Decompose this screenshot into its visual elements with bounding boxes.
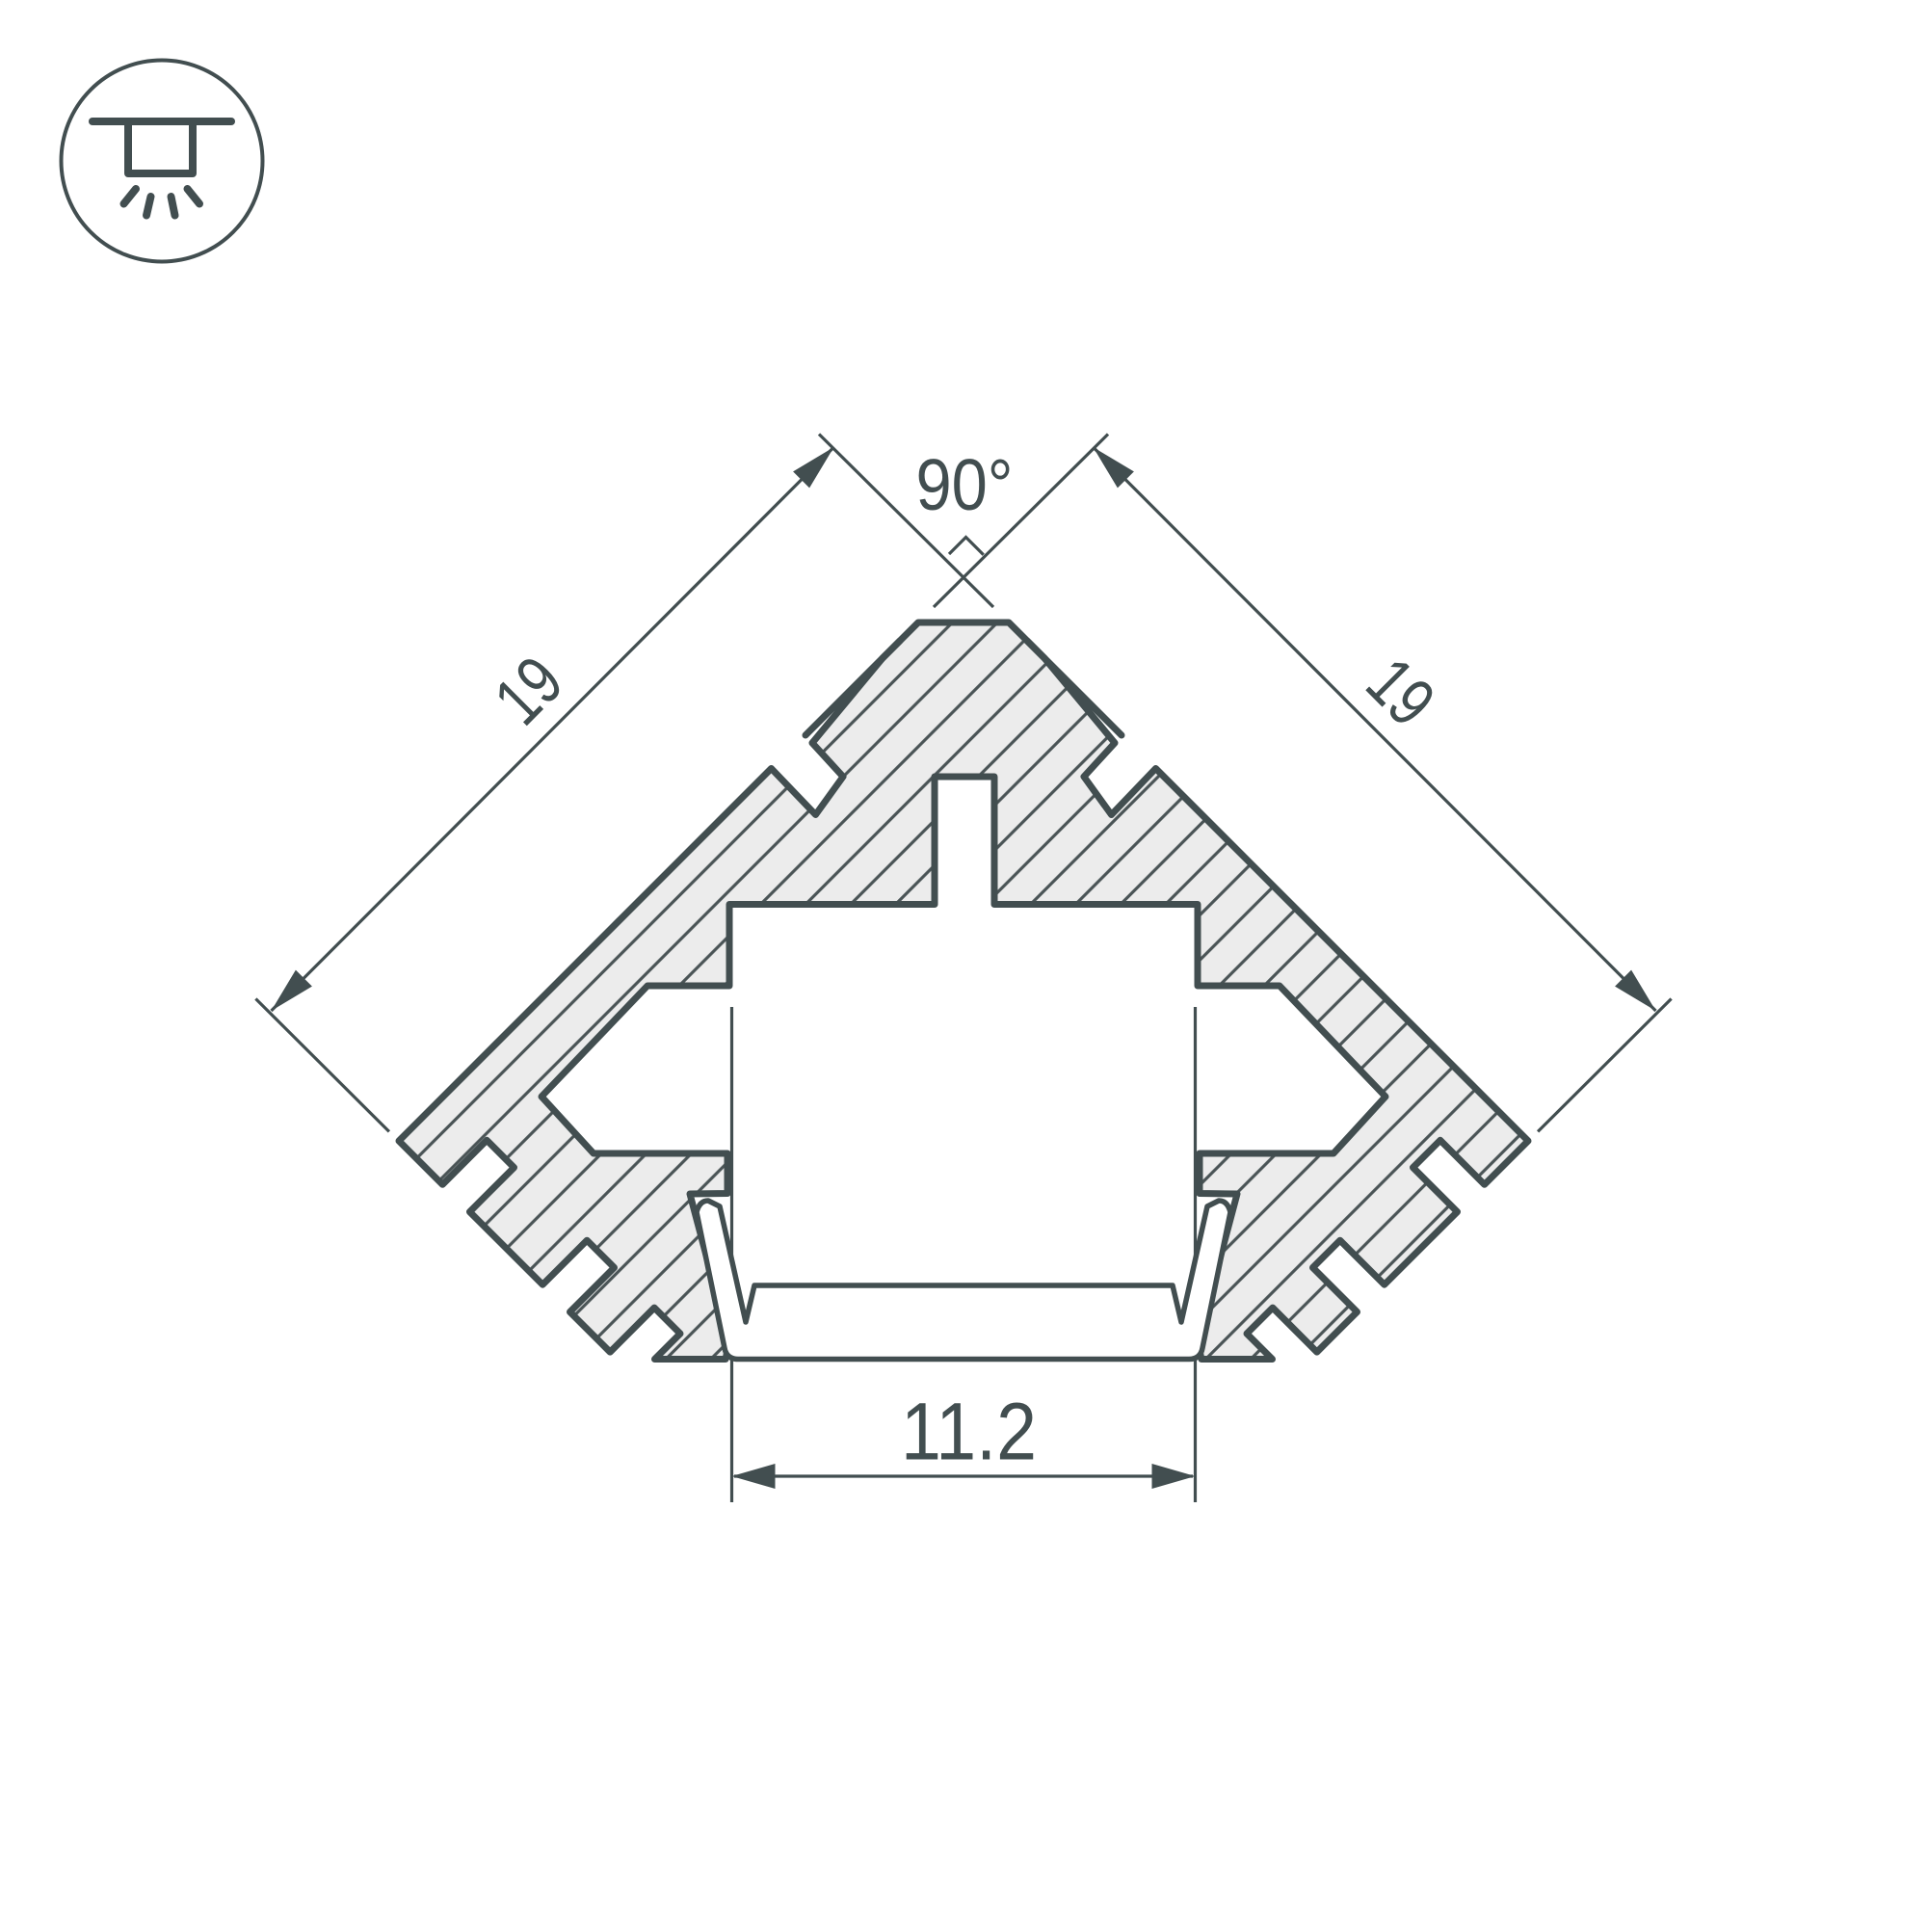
svg-text:90°: 90° [916, 444, 1014, 525]
svg-text:11.2: 11.2 [901, 1387, 1037, 1477]
